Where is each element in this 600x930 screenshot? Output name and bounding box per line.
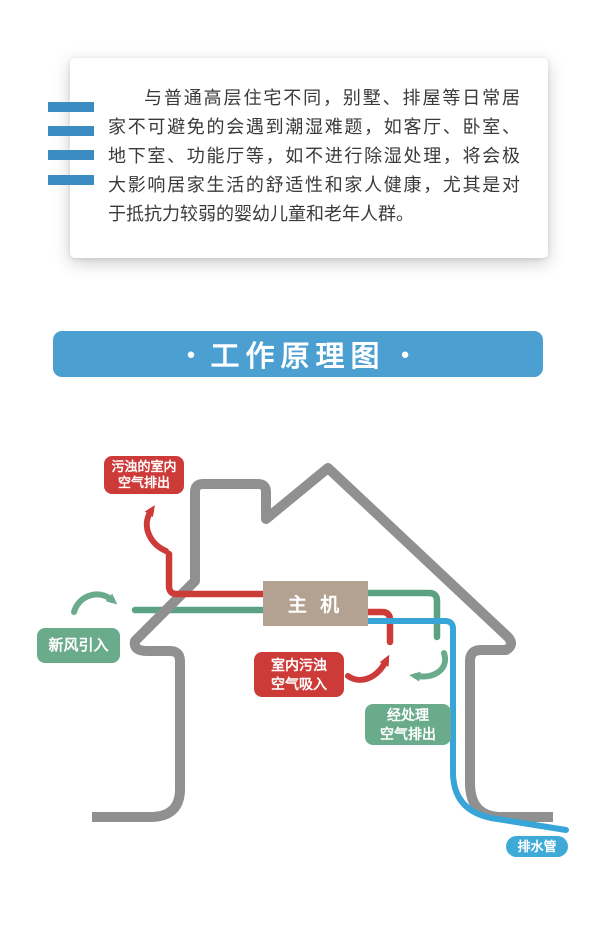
indoor-air-suction-arrow-icon [348,661,386,680]
fresh-air-in-arrow-icon [74,594,112,612]
label-drain-pipe: 排水管 [506,836,568,857]
dirty-air-up-arrow-icon [147,511,166,551]
label-line: 经处理 [365,706,451,725]
label-line: 污浊的室内 [104,459,184,475]
treated-air-out-arrow-icon [416,653,445,676]
label-line: 排水管 [506,836,568,857]
label-treated-air-out: 经处理 空气排出 [365,704,451,745]
label-line: 新风引入 [37,628,120,663]
label-line: 空气吸入 [254,675,344,694]
principle-diagram [0,0,600,930]
main-unit-box: 主 机 [263,581,368,626]
label-indoor-dirty-air-in: 室内污浊 空气吸入 [254,652,344,697]
label-line: 空气排出 [365,725,451,744]
house-outline [92,468,553,817]
label-fresh-air-in: 新风引入 [37,628,120,663]
infographic-page: 与普通高层住宅不同，别墅、排屋等日常居 家不可避免的会遇到潮湿难题，如客厅、卧室… [0,0,600,930]
label-dirty-air-out: 污浊的室内 空气排出 [104,456,184,494]
label-line: 空气排出 [104,475,184,491]
label-line: 室内污浊 [254,656,344,675]
